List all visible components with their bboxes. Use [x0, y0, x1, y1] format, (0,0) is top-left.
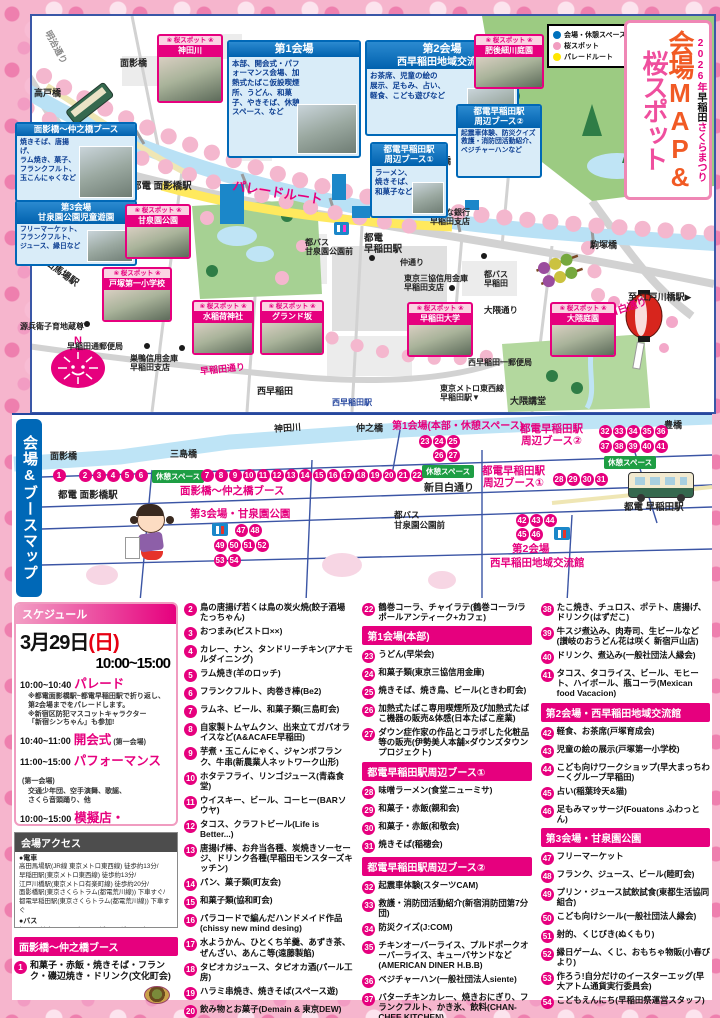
legend-sakura-dot	[553, 42, 561, 50]
label-komatsuka-bashi: 駒塚橋	[590, 240, 617, 250]
booth-number: 34	[627, 425, 640, 438]
booth-list-entry: 18 タピオカジュース、タピオカ酒(パール工房)	[184, 962, 353, 982]
booth-item-text: 鶴巻コーラ、チャイラテ(鶴巻コーラ/ラポールアンティーク+カフェ)	[378, 602, 531, 622]
booth-number: 39	[627, 440, 640, 453]
booth-item: 26 加熱式たばこ専用喫煙所及び加熱式たばこ機器の販売&体感(日本たばこ産業)	[362, 703, 531, 723]
booth-number: 51	[242, 539, 255, 552]
booth-item-number: 42	[541, 727, 554, 740]
booth-item: 14 パン、菓子類(町友会)	[184, 877, 353, 891]
booth-list-entry: 30 和菓子・赤飯(和敬会)	[362, 821, 531, 835]
booth-number: 11	[257, 469, 270, 482]
label-venue3-row: 第3会場・甘泉園公園	[190, 508, 290, 520]
booth-number: 37	[599, 440, 612, 453]
event-time: 11:00~15:00	[20, 757, 71, 767]
food-plate-icon	[144, 986, 170, 1004]
booth-list-entry: 40 ドリンク、煮込み(一般社団法人縁会)	[541, 650, 710, 664]
booth-item-text: 縁日ゲーム、くじ、おもちゃ物販(小春びより)	[557, 947, 710, 967]
booth-section-header: 第2会場・西早稲田地域交流館	[541, 703, 710, 722]
info-section: スケジュール 3月29日(日) 10:00~15:00 10:00~10:40パ…	[12, 598, 712, 1000]
booth-list-entry: 3 おつまみ(ビストロ××)	[184, 626, 353, 640]
spot-tag: ❀ 桜スポット ❀	[127, 206, 189, 215]
label-naka-dori: 仲通り	[400, 258, 424, 267]
venue-box-b2-body: 起震車体験、防災クイズ 救護・消防団活動紹介、 ベジチャーハンなど	[458, 128, 540, 158]
spot-tag: ❀ 桜スポット ❀	[262, 302, 322, 311]
booth-cluster-1: 1	[52, 469, 66, 482]
label-okuma-auditorium: 大隈講堂	[510, 396, 546, 406]
girl-mascot-illustration	[125, 507, 165, 560]
booth-cluster-2-6: 23456	[78, 469, 148, 482]
booth-cluster-42-44: 424344	[515, 514, 557, 527]
booth-list-entry: 13 唐揚げ棒、お弁当各種、炭焼きソーセージ、ドリンク各種(早稲田モンスターズキ…	[184, 843, 353, 873]
booth-item: 27 ダウン症作家の作品とコラボした化粧品等の販売(伊勢美人本舗×ダウンズタウン…	[362, 727, 531, 757]
booth-item-number: 7	[184, 705, 197, 718]
booth-number: 33	[613, 425, 626, 438]
booth-item-text: 芋煮・玉こんにゃく、ジャンボフランク、牛串(新農業人ネットワーク山形)	[200, 746, 353, 766]
booth-section-header-omokage: 面影橋〜仲之橋ブース	[14, 937, 178, 956]
booth-item-text: 焼きそば、焼き鳥、ビール(ときわ町会)	[378, 685, 526, 695]
booth-item: 54 こどもえんにち(早稲田祭運営スタッフ)	[541, 995, 710, 1009]
booth-item: 35 チキンオーバーライス、プルドポークオーバーライス、キューバサンドなど(AM…	[362, 940, 531, 970]
booth-item: 8 自家製トムヤムクン、出来立てガパオライスなど(A&ACAFE早稲田)	[184, 722, 353, 742]
booth-item: 44 こども向けワークショップ(早大まっちわーくグループ早稲田)	[541, 762, 710, 782]
spot-waseda-university: ❀ 桜スポット ❀ 早稲田大学	[407, 302, 473, 357]
booth-number: 29	[567, 473, 580, 486]
label-takato-bashi: 高戸橋	[34, 88, 61, 98]
booth-list-entry: 2 鳥の唐揚げ若くは鳥の炭火焼(餃子酒場たっちゃん)	[184, 602, 353, 622]
spot-waseda-univ-name: 早稲田大学	[409, 313, 471, 325]
spot-kansenen-photo	[127, 227, 189, 257]
label-omokagebashi: 面影橋	[50, 451, 77, 461]
booth-item-1: 1 和菓子・赤飯・焼きそば・フランク・磯辺焼き・ドリンク(文化町会)	[14, 960, 178, 982]
venue-box-omokage-booth-photo	[79, 146, 133, 198]
booth-list-entry: 20 飲み物とお菓子(Demain & 東京DEW)	[184, 1004, 353, 1018]
legend-parade-dot	[553, 53, 561, 61]
booth-cluster-45-46: 4546	[515, 528, 543, 541]
label-booth1-row: 都電早稲田駅 周辺ブース①	[482, 465, 545, 489]
booth-item: 37 バターチキンカレー、焼きおにぎり、フランクフルト、かき氷、飲料(CHAN-…	[362, 992, 531, 1018]
booth-item-text: 占い(稲葉玲天&猫)	[557, 786, 627, 796]
booth-number: 28	[553, 473, 566, 486]
label-nishiwaseda: 西早稲田	[257, 386, 293, 396]
booth-number: 45	[516, 528, 529, 541]
booth-number: 49	[214, 539, 227, 552]
booth-section-header: 第3会場・甘泉園公園	[541, 828, 710, 847]
spot-kandagawa-name: 神田川	[159, 45, 221, 57]
booth-number: 20	[383, 469, 396, 482]
booth-list-entry: 26 加熱式たばこ専用喫煙所及び加熱式たばこ機器の販売&体感(日本たばこ産業)	[362, 703, 531, 723]
booth-list-entry: 51 射的、くじびき(ぬくもり)	[541, 929, 710, 943]
booth-list-entry: 34 防災クイズ(J:COM)	[362, 922, 531, 936]
booth-item: 9 芋煮・玉こんにゃく、ジャンボフランク、牛串(新農業人ネットワーク山形)	[184, 746, 353, 766]
booth-item-number: 48	[541, 870, 554, 883]
booth-list-entry: 第3会場・甘泉園公園	[541, 828, 710, 847]
booth-number: 27	[447, 449, 460, 462]
booth-item-number: 40	[541, 651, 554, 664]
booth-number: 53	[214, 554, 227, 567]
tram-illustration	[628, 472, 694, 498]
booth-item-text: 水ようかん、ひとくち羊羹、あずき茶、ぜんざい、あんこ等(遠藤製餡)	[200, 937, 353, 957]
label-genbei-jizo: 源兵衛子育地蔵尊	[20, 322, 84, 331]
legend-venue-dot	[553, 31, 561, 39]
spot-tag: ❀ 桜スポット ❀	[476, 36, 542, 45]
venue-box-omokage-booth-title: 面影橋〜仲之橋ブース	[17, 124, 135, 136]
booth-number: 40	[641, 440, 654, 453]
label-sankyo-bank: 東京三協信用金庫 早稲田支店	[404, 274, 468, 292]
booth-item: 49 プリン・ジュース試飲試食(東都生活協同組合)	[541, 887, 710, 907]
booth-number: 32	[599, 425, 612, 438]
booth-item-text: タコス、クラフトビール(Life is Better...)	[200, 819, 353, 839]
label-toden-omokage-station: 都電 面影橋駅	[132, 182, 192, 193]
booth-list-entry: 15 和菓子類(協和町会)	[184, 895, 353, 909]
booth-item-text: チキンオーバーライス、プルドポークオーバーライス、キューバサンドなど(AMERI…	[378, 940, 531, 970]
booth-list-entry: 都電早稲田駅周辺ブース②	[362, 857, 531, 876]
booth-item-number: 28	[362, 786, 375, 799]
booth-item-number: 13	[184, 844, 197, 857]
booth-list-entry: 44 こども向けワークショップ(早大まっちわーくグループ早稲田)	[541, 762, 710, 782]
booth-item-number: 5	[184, 669, 197, 682]
schedule-box: スケジュール 3月29日(日) 10:00~15:00 10:00~10:40パ…	[14, 602, 178, 826]
booth-item: 2 鳥の唐揚げ若くは鳥の炭火焼(餃子酒場たっちゃん)	[184, 602, 353, 622]
booth-item: 31 焼きそば(稲穂会)	[362, 839, 531, 853]
booth-item-number: 39	[541, 627, 554, 640]
booth-item: 34 防災クイズ(J:COM)	[362, 922, 531, 936]
booth-number: 13	[285, 469, 298, 482]
label-mishimabashi: 三島橋	[170, 449, 197, 459]
booth-number: 19	[369, 469, 382, 482]
label-nakanohashi: 仲之橋	[356, 423, 383, 433]
booth-cluster-32-36: 3233343536	[598, 425, 672, 438]
rest-space-badge-2: 休憩スペース	[422, 465, 474, 478]
booth-number: 18	[355, 469, 368, 482]
booth-number: 35	[641, 425, 654, 438]
booth-cluster-47-48: 4748	[234, 524, 262, 537]
venue-box-1-photo	[297, 104, 357, 154]
booth-item: 53 作ろう!自分だけのイースターエッグ(早大アトム通貨実行委員会)	[541, 971, 710, 991]
booth-item: 36 ベジチャーハン(一般社団法人siente)	[362, 974, 531, 988]
venue-box-1: 第1会場 本部、開会式・パフォーマンス会場、加熱式たばこ仮設喫煙所、うどん、和菓…	[227, 40, 361, 158]
venue-box-1-body: 本部、開会式・パフォーマンス会場、加熱式たばこ仮設喫煙所、うどん、和菓子、やきそ…	[229, 57, 307, 120]
booth-list-entry: 36 ベジチャーハン(一般社団法人siente)	[362, 974, 531, 988]
event-time: 10:00~15:00	[20, 814, 71, 824]
spot-kansenen: ❀ 桜スポット ❀ 甘泉園公園	[125, 204, 191, 259]
booth-number: 52	[256, 539, 269, 552]
booth-item-text: 唐揚げ棒、お弁当各種、炭焼きソーセージ、ドリンク各種(早稲田モンスターズキッチン…	[200, 843, 353, 873]
booth-number: 8	[215, 469, 228, 482]
spot-higohosokawa-photo	[476, 57, 542, 87]
booth-item-text: 和菓子類(協和町会)	[200, 895, 273, 905]
booth-item-text: こども向けワークショップ(早大まっちわーくグループ早稲田)	[557, 762, 710, 782]
event-name: パフォーマンス	[74, 754, 161, 768]
booth-item: 24 和菓子類(東京三協信用金庫)	[362, 667, 531, 681]
booth-list-entry: 33 救護・消防団活動紹介(新宿消防団第7分団)	[362, 898, 531, 918]
booth-list-entry: 38 たこ焼き、チュロス、ポテト、唐揚げ、ドリンク(はずだこ)	[541, 602, 710, 622]
booth-item-number: 34	[362, 923, 375, 936]
spot-mizuinari-name: 水稲荷神社	[194, 311, 252, 323]
booth-item-text: ドリンク、煮込み(一般社団法人縁会)	[557, 650, 696, 660]
toilet-icon-venue3	[212, 523, 228, 536]
booth-section-header: 都電早稲田駅周辺ブース①	[362, 762, 531, 781]
label-tobus-kansenen-mae: 都バス 甘泉園公園前	[394, 511, 445, 531]
booth-item-text: タピオカジュース、タピオカ酒(パール工房)	[200, 962, 353, 982]
booth-list-entry: 第2会場・西早稲田地域交流館	[541, 703, 710, 722]
booth-list-entry: 43 児童の絵の展示(戸塚第一小学校)	[541, 744, 710, 758]
booth-item: 39 牛スジ煮込み、肉寿司、生ビールなど(讃岐のおうどん花は咲く 新宿戸山店)	[541, 626, 710, 646]
booth-item-number: 2	[184, 603, 197, 616]
toilet-icon-venue2	[554, 527, 570, 540]
booth-item: 18 タピオカジュース、タピオカ酒(パール工房)	[184, 962, 353, 982]
booth-item-number: 27	[362, 728, 375, 741]
booth-list-entry: 42 軽食、お茶席(戸塚育成会)	[541, 726, 710, 740]
label-venue2-b: 西早稲田地域交流館	[490, 557, 585, 569]
booth-number: 47	[235, 524, 248, 537]
booth-item: 51 射的、くじびき(ぬくもり)	[541, 929, 710, 943]
booth-number: 43	[530, 514, 543, 527]
booth-item: 40 ドリンク、煮込み(一般社団法人縁会)	[541, 650, 710, 664]
spot-tag: ❀ 桜スポット ❀	[159, 36, 221, 45]
festival-poster: N 明治通り 高戸橋 面影橋 三島橋 仲之橋 豊橋	[0, 0, 720, 1018]
booth-item: 22 鶴巻コーラ、チャイラテ(鶴巻コーラ/ラポールアンティーク+カフェ)	[362, 602, 531, 622]
booth-number: 10	[243, 469, 256, 482]
booth-list-flow: 2 鳥の唐揚げ若くは鳥の炭火焼(餃子酒場たっちゃん) 3 おつまみ(ビストロ××…	[184, 602, 710, 1018]
label-toden-waseda-station: 都電 早稲田駅	[364, 234, 402, 256]
event-time: 10:00~10:40	[20, 680, 71, 690]
booth-item: 23 うどん(早栄会)	[362, 649, 531, 663]
label-booth2-row: 都電早稲田駅 周辺ブース②	[520, 423, 583, 447]
booth-item: 15 和菓子類(協和町会)	[184, 895, 353, 909]
booth-number: 7	[201, 469, 214, 482]
booth-item-number: 43	[541, 745, 554, 758]
venue-box-3: 第3会場甘泉園公園児童遊園 フリーマーケット、 フランクフルト、 ジュース、縁日…	[15, 200, 137, 266]
spot-tag: ❀ 桜スポット ❀	[104, 269, 170, 278]
booth-item-number: 20	[184, 1005, 197, 1018]
booth-cluster-53-54: 5354	[213, 554, 241, 567]
booth-list-entry: 6 フランクフルト、肉巻き棒(Be2)	[184, 686, 353, 700]
spot-grandzaka-name: グランド坂	[262, 311, 322, 323]
venue-box-3-title: 第3会場甘泉園公園児童遊園	[17, 202, 135, 224]
venue-box-b2: 都電早稲田駅 周辺ブース② 起震車体験、防災クイズ 救護・消防団活動紹介、 ベジ…	[456, 104, 542, 178]
booth-item-text: こども向けシール(一般社団法人縁会)	[557, 911, 697, 921]
booth-item: 7 ラムネ、ビール、和菓子類(三島町会)	[184, 704, 353, 718]
label-nishiwaseda-station: 西早稲田駅	[332, 398, 372, 407]
booth-item-number: 24	[362, 668, 375, 681]
booth-list-entry: 45 占い(稲葉玲天&猫)	[541, 786, 710, 800]
booth-cluster-7-22: 78910111213141516171819202122	[200, 469, 428, 482]
spot-kansenen-name: 甘泉園公園	[127, 215, 189, 227]
booth-list-entry: 5 ラム焼き(羊のロッチ)	[184, 668, 353, 682]
spot-waseda-univ-photo	[409, 325, 471, 355]
booth-number: 2	[79, 469, 92, 482]
booth-item-number: 45	[541, 787, 554, 800]
booth-item-number: 3	[184, 627, 197, 640]
booth-item-number: 33	[362, 899, 375, 912]
schedule-event: 10:00~10:40パレード ※都電面影橋駅~都電早稲田駅で折り返し、 第2会…	[16, 674, 176, 730]
event-sub: (第一会場)	[22, 778, 55, 785]
booth-list-entry: 46 足もみマッサージ(Fouatons ふわっとん)	[541, 804, 710, 824]
venue-map: N 明治通り 高戸橋 面影橋 三島橋 仲之橋 豊橋	[30, 14, 716, 414]
booth-list-entry: 16 パラコードで編んだハンドメイド作品(chissy new mind des…	[184, 913, 353, 933]
booth-item-text: ホタテフライ、リンゴジュース(青森食堂)	[200, 771, 353, 791]
booth-item: 3 おつまみ(ビストロ××)	[184, 626, 353, 640]
booth-item: 6 フランクフルト、肉巻き棒(Be2)	[184, 686, 353, 700]
spot-okuma-garden: ❀ 桜スポット ❀ 大隈庭園	[550, 302, 616, 357]
booth-item-text: うどん(早栄会)	[378, 649, 434, 659]
booth-list-entry: 9 芋煮・玉こんにゃく、ジャンボフランク、牛串(新農業人ネットワーク山形)	[184, 746, 353, 766]
booth-item-number: 37	[362, 993, 375, 1006]
booth-number: 15	[313, 469, 326, 482]
booth-item-number: 12	[184, 820, 197, 833]
booth-number: 4	[107, 469, 120, 482]
booth-list-entry: 39 牛スジ煮込み、肉寿司、生ビールなど(讃岐のおうどん花は咲く 新宿戸山店)	[541, 626, 710, 646]
label-tobus-kansenen: 都バス 甘泉園公園前	[305, 238, 353, 256]
booth-list-entry: 10 ホタテフライ、リンゴジュース(青森食堂)	[184, 771, 353, 791]
booth-list-entry: 53 作ろう!自分だけのイースターエッグ(早大アトム通貨実行委員会)	[541, 971, 710, 991]
venue-box-2-body: お茶席、児童の絵の 展示、足もみ、占い、 軽食、こども遊びなど	[367, 69, 468, 102]
booth-item-text: 和菓子類(東京三協信用金庫)	[378, 667, 484, 677]
spot-mizuinari: ❀ 桜スポット ❀ 水稲荷神社	[192, 300, 254, 355]
booth-list-entry: 52 縁日ゲーム、くじ、おもちゃ物販(小春びより)	[541, 947, 710, 967]
booth-item-number: 1	[14, 961, 27, 974]
booth-item-number: 14	[184, 878, 197, 891]
booth-list-entry: 第1会場(本部)	[362, 626, 531, 645]
event-time: 10:40~11:00	[20, 736, 71, 746]
venue-box-3-body: フリーマーケット、 フランクフルト、 ジュース、縁日など	[17, 224, 85, 254]
booth-list-entry: 35 チキンオーバーライス、プルドポークオーバーライス、キューバサンドなど(AM…	[362, 940, 531, 970]
label-nishiwaseda-post-office: 西早稲田一郵便局	[468, 358, 532, 367]
booth-item-number: 16	[184, 914, 197, 927]
event-notes: ※都電面影橋駅~都電早稲田駅で折り返し、 第2会場までをパレードします。 ※新宿…	[20, 693, 172, 728]
booth-item-number: 51	[541, 930, 554, 943]
spot-grandzaka: ❀ 桜スポット ❀ グランド坂	[260, 300, 324, 355]
booth-list-entry: 7 ラムネ、ビール、和菓子類(三島町会)	[184, 704, 353, 718]
booth-item-number: 49	[541, 888, 554, 901]
booth-list-entry: 23 うどん(早栄会)	[362, 649, 531, 663]
spot-grandzaka-photo	[262, 323, 322, 353]
schedule-header: スケジュール	[16, 604, 176, 624]
booth-list-entry: 28 味噌ラーメン(食堂ニューミサ)	[362, 785, 531, 799]
booth-section-header: 第1会場(本部)	[362, 626, 531, 645]
spot-totsuka-name: 戸塚第一小学校	[104, 278, 170, 290]
booth-number: 38	[613, 440, 626, 453]
booth-item: 48 フランク、ジュース、ビール(睦町会)	[541, 869, 710, 883]
spot-okuma-garden-name: 大隈庭園	[552, 313, 614, 325]
poster-title-line2: 桜スポット	[641, 29, 667, 191]
booth-list-entry: 17 水ようかん、ひとくち羊羹、あずき茶、ぜんざい、あんこ等(遠藤製餡)	[184, 937, 353, 957]
rest-space-badge-1: 休憩スペース	[152, 470, 204, 483]
booth-item: 46 足もみマッサージ(Fouatons ふわっとん)	[541, 804, 710, 824]
booth-item: 33 救護・消防団活動紹介(新宿消防団第7分団)	[362, 898, 531, 918]
booth-item-text: 足もみマッサージ(Fouatons ふわっとん)	[557, 804, 710, 824]
booth-item-text: パラコードで編んだハンドメイド作品(chissy new mind desing…	[200, 913, 353, 933]
label-omokage-booth-row: 面影橋〜仲之橋ブース	[180, 485, 284, 497]
booth-number: 54	[228, 554, 241, 567]
booth-item: 45 占い(稲葉玲天&猫)	[541, 786, 710, 800]
booth-item-text: フランク、ジュース、ビール(睦町会)	[557, 869, 695, 879]
label-venue2-a: 第2会場	[512, 543, 549, 555]
booth-list-entry: 14 パン、菓子類(町友会)	[184, 877, 353, 891]
booth-item-number: 19	[184, 987, 197, 1000]
booth-number: 1	[53, 469, 66, 482]
booth-item-text: 味噌ラーメン(食堂ニューミサ)	[378, 785, 492, 795]
booth-cluster-49-52: 49505152	[213, 539, 269, 552]
booth-list-col1: 面影橋〜仲之橋ブース 1 和菓子・赤飯・焼きそば・フランク・磯辺焼き・ドリンク(…	[14, 934, 178, 1004]
booth-item-number: 8	[184, 723, 197, 736]
booth-item-text: 自家製トムヤムクン、出来立てガパオライスなど(A&ACAFE早稲田)	[200, 722, 353, 742]
booth-item: 29 和菓子・赤飯(親和会)	[362, 803, 531, 817]
booth-item-text: 飲み物とお菓子(Demain & 東京DEW)	[200, 1004, 341, 1014]
booth-number: 25	[447, 435, 460, 448]
booth-number: 17	[341, 469, 354, 482]
booth-item: 17 水ようかん、ひとくち羊羹、あずき茶、ぜんざい、あんこ等(遠藤製餡)	[184, 937, 353, 957]
booth-item-number: 26	[362, 704, 375, 717]
booth-item-number: 9	[184, 747, 197, 760]
venue-box-b2-title: 都電早稲田駅 周辺ブース②	[458, 106, 540, 128]
booth-item-number: 15	[184, 896, 197, 909]
booth-item: 16 パラコードで編んだハンドメイド作品(chissy new mind des…	[184, 913, 353, 933]
booth-item-text: 牛スジ煮込み、肉寿司、生ビールなど(讃岐のおうどん花は咲く 新宿戸山店)	[557, 626, 710, 646]
label-waseda-post-office: 早稲田通郵便局	[67, 342, 123, 351]
booth-item-text: こどもえんにち(早稲田祭運営スタッフ)	[557, 995, 705, 1005]
booth-number: 6	[135, 469, 148, 482]
booth-item-text: 加熱式たばこ専用喫煙所及び加熱式たばこ機器の販売&体感(日本たばこ産業)	[378, 703, 531, 723]
access-bus: ●バス都バス 甘泉園公園/グランド坂下/早稲田 下車すぐ	[15, 917, 177, 928]
booth-item-text: プリン・ジュース試飲試食(東都生活協同組合)	[557, 887, 710, 907]
venue-box-1-title: 第1会場	[229, 42, 359, 57]
booth-item-number: 44	[541, 763, 554, 776]
spot-tag: ❀ 桜スポット ❀	[552, 304, 614, 313]
booth-item: 42 軽食、お茶席(戸塚育成会)	[541, 726, 710, 740]
event-name: パレード	[74, 677, 124, 691]
spot-tag: ❀ 桜スポット ❀	[409, 304, 471, 313]
booth-item-number: 35	[362, 941, 375, 954]
booth-number: 9	[229, 469, 242, 482]
booth-number: 24	[433, 435, 446, 448]
booth-item-number: 29	[362, 804, 375, 817]
booth-list-entry: 49 プリン・ジュース試飲試食(東都生活協同組合)	[541, 887, 710, 907]
booth-item-text: 和菓子・赤飯(親和会)	[378, 803, 459, 813]
booth-list-entry: 8 自家製トムヤムクン、出来立てガパオライスなど(A&ACAFE早稲田)	[184, 722, 353, 742]
booth-list-entry: 25 焼きそば、焼き鳥、ビール(ときわ町会)	[362, 685, 531, 699]
booth-number: 48	[249, 524, 262, 537]
booth-list-entry: 4 カレー、ナン、タンドリーチキン(アナモルダイニング)	[184, 644, 353, 664]
event-name: 開会式	[74, 733, 112, 747]
label-tobus-waseda: 都バス 早稲田	[484, 270, 508, 288]
booth-item: 11 ウイスキー、ビール、コーヒー(BARソウヤ)	[184, 795, 353, 815]
access-box: 会場アクセス ●電車高田馬場駅(JR線 東京メトロ東西線) 徒歩約13分/ 早稲…	[14, 832, 178, 928]
label-venue1-row: 第1会場(本部・休憩スペース)	[392, 421, 523, 433]
booth-item: 13 唐揚げ棒、お弁当各種、炭焼きソーセージ、ドリンク各種(早稲田モンスターズキ…	[184, 843, 353, 873]
venue-box-b1: 都電早稲田駅 周辺ブース① ラーメン、 焼きそば、 和菓子など	[370, 142, 448, 218]
booth-item: 10 ホタテフライ、リンゴジュース(青森食堂)	[184, 771, 353, 791]
booth-list-entry: 31 焼きそば(稲穂会)	[362, 839, 531, 853]
booth-item-number: 30	[362, 822, 375, 835]
booth-item-number: 38	[541, 603, 554, 616]
booth-item-number: 32	[362, 881, 375, 894]
label-omokage-bashi: 面影橋	[120, 58, 147, 68]
venue-box-b1-title: 都電早稲田駅 周辺ブース①	[372, 144, 446, 166]
booth-list-entry: 29 和菓子・赤飯(親和会)	[362, 803, 531, 817]
booth-item-text: バターチキンカレー、焼きおにぎり、フランクフルト、かき氷、飲料(CHAN-CHE…	[378, 992, 531, 1018]
booth-number: 50	[228, 539, 241, 552]
booth-cluster-37-41: 3738394041	[598, 440, 672, 453]
booth-item-text: ダウン症作家の作品とコラボした化粧品等の販売(伊勢美人本舗×ダウンズタウンプロジ…	[378, 727, 531, 757]
booth-list-entry: 24 和菓子類(東京三協信用金庫)	[362, 667, 531, 681]
poster-subtitle: 2026年早稲田さくらまつり	[695, 29, 705, 191]
access-train: ●電車高田馬場駅(JR線 東京メトロ東西線) 徒歩約13分/ 早稲田駅(東京メト…	[15, 852, 177, 917]
rest-space-badge-3: 休憩スペース	[604, 456, 656, 469]
booth-item: 41 タコス、タコライス、ビール、モヒート、ハイボール、瓶コーラ(Mexican…	[541, 668, 710, 698]
booth-section-header: 都電早稲田駅周辺ブース②	[362, 857, 531, 876]
booth-item-text: パン、菓子類(町友会)	[200, 877, 281, 887]
